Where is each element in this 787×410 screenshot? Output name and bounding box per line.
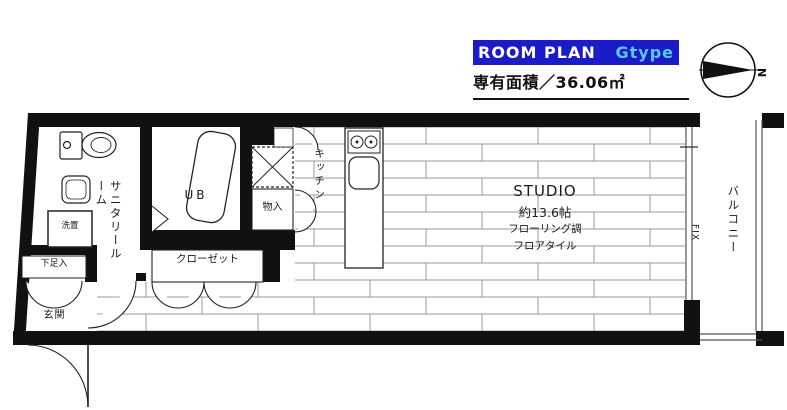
shoe-cabinet-door-arc: [26, 281, 54, 308]
bathtub-fixture: [152, 129, 238, 232]
room-label-balcony: バルコニー: [726, 185, 740, 285]
studio-size: 約13.6帖: [460, 205, 630, 221]
ub-door-icon: [152, 206, 168, 232]
sink-icon: [349, 157, 379, 189]
room-label-laundry: 洗置: [50, 221, 90, 232]
studio-floor-spec-2: フロアタイル: [460, 240, 630, 253]
floor-plan-page: ROOM PLAN Gtype 専有面積／36.06㎡ N: [0, 0, 787, 410]
room-label-shoe-cabinet: 下足入: [22, 259, 86, 270]
room-label-sanitary: サニタリールーム: [94, 180, 123, 268]
entrance-door-arc: [28, 345, 88, 407]
room-label-fix-window: FIX: [688, 224, 699, 264]
room-label-studio: STUDIO 約13.6帖 フローリング調 フロアタイル: [460, 182, 630, 253]
washbasin-fixture: [62, 176, 90, 203]
studio-name: STUDIO: [460, 182, 630, 201]
room-label-storage: 物入: [250, 202, 295, 215]
room-label-unit-bath: UB: [152, 188, 240, 203]
meter-box: [274, 128, 293, 147]
shoe-cabinet-door-arc: [54, 281, 82, 308]
room-label-kitchen: キッチン: [312, 148, 325, 228]
studio-floor-spec-1: フローリング調: [460, 223, 630, 236]
toilet-fixture: [60, 132, 116, 159]
kitchen-counter: [345, 128, 383, 268]
room-label-closet: クローゼット: [152, 253, 263, 266]
room-label-entrance: 玄関: [24, 310, 85, 323]
